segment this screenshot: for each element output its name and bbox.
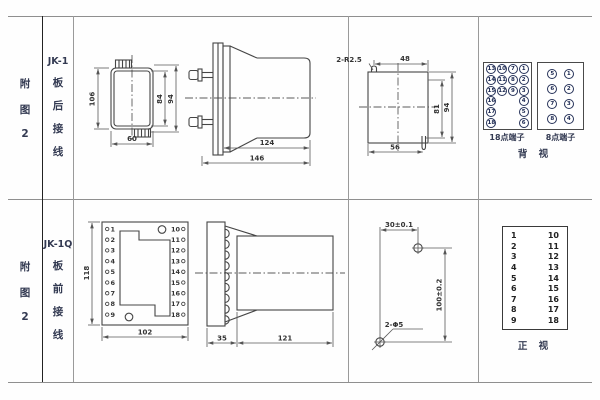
terminal: 7 [508,64,518,74]
terminal-num: 2 [111,236,116,244]
terminal: 1 [519,64,529,74]
mounting-hole [158,226,166,234]
model-char: 接 [53,304,64,319]
table-col-line-4 [478,16,479,382]
table-border-bottom [8,382,592,383]
dim-plate-height: 118 [83,266,91,281]
figure-label-top: 附 图 2 [8,16,42,199]
rear-case-view-drawing: 106 60 84 94 [85,48,185,163]
bottom-terminal-block [135,129,151,137]
terminal: 8 [547,114,557,124]
terminal: 3 [519,86,529,96]
figure-char: 图 [20,285,31,300]
panel-cutout-drawing: 48 2-R2.5 56 81 94 [348,30,474,165]
rear-side-view-drawing: 124 146 [183,35,323,168]
terminal-num: 13 [171,257,180,265]
terminal-num: 3 [111,247,116,255]
dim-inner-height: 84 [156,94,164,104]
dim-outer-height: 94 [167,94,175,104]
terminal: 7 [547,99,557,109]
terminal-num: 18 [171,311,181,319]
front-plate [207,222,225,326]
label-8pt: 8点端子 [537,132,584,143]
terminal: 18 [486,118,496,128]
drill-layout-drawing: 30±0.1 100±0.2 2-Φ5 [360,215,473,361]
terminal-table-left-col: 123 456 789 [511,231,517,325]
terminal: 11 [497,75,507,85]
terminal-num: 7 [111,290,116,298]
front-view-label: 正 视 [478,338,592,352]
model-name: JK-1Q [44,239,73,250]
label-18pt: 18点端子 [479,132,535,143]
terminal: 4 [519,96,529,106]
terminal-num: 11 [171,236,181,244]
dim-hole-spacing-y: 100±0.2 [436,278,444,311]
terminal: 17 [486,107,496,117]
terminal: 9 [508,86,518,96]
back-view-label: 背 视 [478,146,592,160]
table-col-line-2 [73,16,74,382]
top-terminal-block [116,60,132,68]
hole-diameter-note: 2-Φ5 [385,321,404,329]
terminal: 16 [486,96,496,106]
dim-width: 60 [127,135,137,143]
terminal-block-8pt: 5 1 6 2 7 3 8 4 [537,62,584,130]
terminal-num: 5 [111,268,116,276]
terminal: 2 [519,75,529,85]
dim-bottom-width: 56 [390,144,400,152]
dim-height: 106 [89,92,97,107]
figure-char: 图 [20,102,31,117]
figure-char: 附 [20,76,31,91]
terminal-table-right-col: 101112 131415 161718 [548,231,559,325]
model-label-front: JK-1Q 板 前 接 线 [43,199,73,382]
table-border-top [8,16,592,17]
terminal: 12 [497,86,507,96]
terminal-num: 4 [111,257,116,265]
terminal: 1 [564,69,574,79]
model-label-rear: JK-1 板 后 接 线 [43,16,73,199]
terminal: 6 [547,84,557,94]
terminal-screw [189,116,213,128]
model-char: 板 [53,258,64,273]
terminal: 5 [547,69,557,79]
model-char: 后 [53,98,64,113]
dim-front-depth: 35 [217,335,227,343]
dim-body-depth: 121 [278,335,293,343]
dim-total-depth: 146 [250,155,265,163]
terminal-num: 9 [111,311,116,319]
terminal-screw [189,69,213,81]
terminal-num: 10 [171,225,181,233]
model-char: 前 [53,281,64,296]
terminal-num: 16 [171,290,181,298]
terminal-block-18pt: 13 14 15 16 17 18 10 11 12 7 8 9 1 2 3 4… [483,62,532,130]
figure-label-bottom: 附 图 2 [8,199,42,382]
table-row-divider [8,199,592,200]
dim-top-width: 48 [400,55,410,63]
radius-note: 2-R2.5 [336,56,362,64]
mounting-hole [125,313,133,321]
front-side-view-drawing: 35 121 [195,215,347,350]
dim-outer-height: 94 [443,103,451,113]
terminal: 10 [497,64,507,74]
dim-hole-spacing-x: 30±0.1 [385,221,413,229]
terminal: 6 [519,118,529,128]
terminal-num: 12 [171,247,180,255]
figure-char: 2 [21,128,28,140]
terminal: 15 [486,86,496,96]
dim-body-depth: 124 [260,139,275,147]
figure-char: 2 [21,311,28,323]
model-char: 线 [53,327,64,342]
dim-inner-height: 81 [433,104,441,114]
case-silhouette [120,231,170,316]
terminal-num: 17 [171,300,180,308]
model-char: 接 [53,121,64,136]
terminal-num: 14 [171,268,181,276]
model-char: 板 [53,75,64,90]
model-name: JK-1 [48,56,69,67]
terminal-table-front: 123 456 789 101112 131415 161718 [502,226,568,330]
model-char: 线 [53,144,64,159]
terminal-num: 15 [171,279,181,287]
terminal-num: 6 [111,279,116,287]
terminal: 2 [564,84,574,94]
terminal: 4 [564,114,574,124]
terminal: 3 [564,99,574,109]
figure-char: 附 [20,259,31,274]
terminal-num: 1 [111,225,116,233]
dim-plate-width: 102 [138,329,153,337]
terminal: 8 [508,75,518,85]
terminal: 13 [486,64,496,74]
terminal-bumps [225,229,229,324]
terminal-num: 8 [111,300,116,308]
terminal: 5 [519,107,529,117]
terminal: 14 [486,75,496,85]
front-plate-drawing: 1 2 3 4 5 6 7 8 9 10 11 12 13 14 15 16 1… [80,215,200,348]
